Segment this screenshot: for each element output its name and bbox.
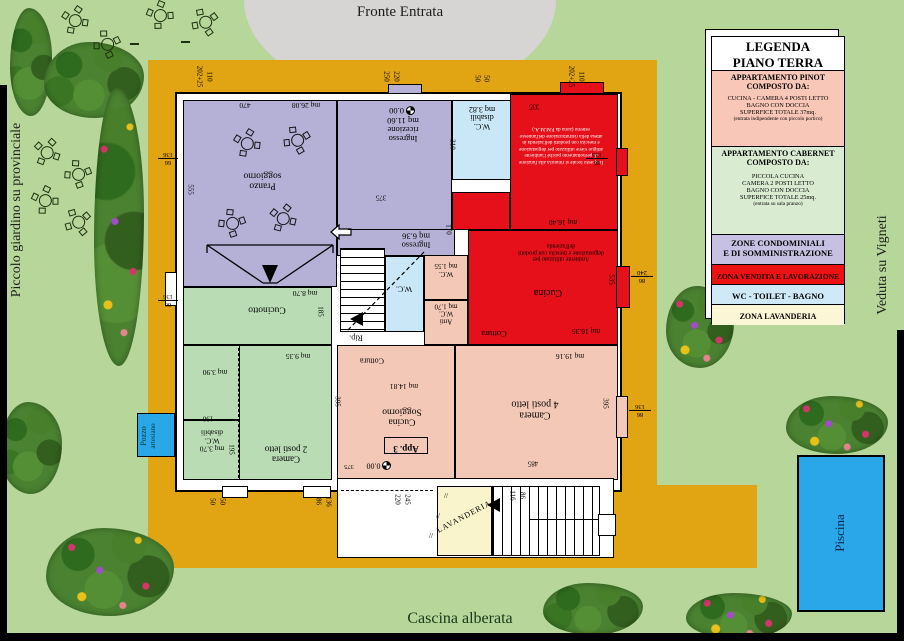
hatch-mark: //	[436, 512, 440, 520]
label-cottura-vendita: Cottura	[472, 329, 516, 338]
label-vendita-mq: mq 16.40	[540, 218, 586, 226]
label-wc-disabili-nord: W.C. disabili mq 3.82	[457, 104, 507, 130]
dim-375-ricezione: 375	[368, 193, 394, 201]
dim-bottom-4b: 86	[519, 481, 526, 511]
legend-title: LEGENDA PIANO TERRA	[712, 37, 844, 71]
ricezione-opening	[348, 229, 446, 230]
dim-170: 170	[445, 215, 452, 245]
dim-top-3b: 50	[483, 68, 490, 90]
label-pranzo: Pranzo soggiorno	[225, 170, 300, 191]
dim-left-1: 66136	[157, 150, 179, 166]
legend-entry-pinot: APPARTAMENTO PINOT COMPOSTO DA: CUCINA -…	[712, 71, 844, 147]
dim-555: 555	[187, 175, 194, 205]
dim-bottom-2a: 86	[315, 487, 322, 517]
dim-140: 140	[460, 170, 467, 200]
stairs-mid-rail	[530, 519, 598, 520]
dim-395-est: 395	[602, 389, 609, 419]
dim-right-1: 86136	[585, 150, 609, 166]
datum-icon	[383, 461, 392, 470]
bush	[0, 402, 62, 494]
dim-190: 190	[194, 414, 222, 422]
label-wc-155: W.C. mq 1.55	[427, 262, 465, 277]
dim-bottom-2b: 136	[325, 487, 332, 517]
label-camera2-mq: mq 9.35	[276, 352, 320, 360]
label-piccolo-giardino: Piccolo giardino su provinciale	[9, 95, 31, 325]
hatch-mark: //	[444, 492, 448, 500]
label-piscina: Piscina	[832, 493, 850, 573]
table-icon	[188, 5, 223, 40]
table-icon	[58, 3, 91, 36]
courtyard-extension	[657, 485, 757, 568]
camera2-dashed-wall	[238, 348, 239, 478]
stairs-landing	[598, 514, 616, 536]
table-icon	[63, 159, 93, 189]
table-icon	[60, 204, 96, 240]
label-mq390: mq 3.90	[192, 368, 238, 376]
dim-right-2: 86240	[630, 268, 654, 284]
stairs-main-arrow	[350, 312, 363, 326]
room-mq390	[183, 345, 240, 420]
frame-right	[897, 330, 904, 633]
dim-395-ovest: 395	[334, 387, 341, 417]
frame-left	[0, 85, 7, 633]
dim-top-2b: 220	[393, 62, 400, 92]
dim-top-4a: 202+25	[568, 59, 575, 95]
dash-mark	[130, 43, 139, 45]
label-rip: Rip.	[342, 333, 370, 342]
label-ricezione: Ingresso ricezione mq 11.60 0.00	[372, 106, 434, 143]
dim-top-3a: 50	[474, 68, 481, 90]
legend-entry-lavanderia: ZONA LAVANDERIA	[712, 305, 844, 325]
label-anti-wc: Anti W.C. mq 1.70	[426, 302, 466, 325]
dim-375-app3: 375	[338, 463, 360, 470]
dim-535: 535	[608, 265, 615, 295]
label-cucina: Cucina	[520, 286, 576, 297]
table-icon	[29, 134, 65, 170]
legend-entry-wc: WC - TOILET - BAGNO	[712, 285, 844, 305]
table-icon	[30, 185, 61, 216]
door-camera4-est	[616, 396, 628, 438]
dim-right-3: 86136	[628, 402, 652, 418]
label-pozzo: Pozzo artesiano	[139, 414, 173, 458]
dim-195: 195	[228, 437, 235, 463]
legend-entry-cabernet: APPARTAMENTO CABERNET COMPOSTO DA: PICCO…	[712, 147, 844, 235]
dim-185: 185	[317, 297, 324, 327]
stage-shape	[203, 241, 337, 287]
label-camera2: Camera 2 posti letto	[248, 444, 324, 463]
label-wc-scala: W.C.	[391, 284, 417, 293]
dim-bottom-1a: 50	[209, 487, 216, 517]
hatch-mark: //	[429, 532, 433, 540]
bush	[786, 396, 888, 454]
dim-470: 470	[230, 101, 260, 109]
label-cucina-mq: mq 16.35	[563, 327, 609, 335]
label-ingresso: Ingresso mq 6.36	[390, 231, 442, 249]
legend: LEGENDA PIANO TERRA APPARTAMENTO PINOT C…	[711, 36, 845, 324]
dim-bottom-3a: 220	[394, 485, 401, 515]
label-app3-mq: mq 14.81	[380, 382, 428, 390]
label-veduta-vigneti: Veduta su Vigneti	[875, 190, 893, 340]
corridor-opening	[341, 490, 433, 491]
bush	[46, 528, 174, 616]
dim-top-1a: 202+25	[196, 59, 203, 95]
label-cucinotto: Cucinotto	[238, 304, 296, 314]
dim-310: 310	[449, 130, 456, 160]
label-fronte-entrata: Fronte Entrata	[330, 4, 470, 21]
datum-icon	[406, 106, 415, 115]
label-camera4-mq: mq 19.16	[546, 352, 594, 360]
flower-hedge	[94, 88, 144, 366]
app3-tag-box: App. 3	[384, 437, 428, 454]
dim-bottom-4a: 116	[509, 481, 516, 511]
label-camera4: Camera 4 posti letto	[490, 398, 580, 420]
dim-top-4b: 110	[578, 59, 585, 95]
label-app3-datum: 0.00	[352, 461, 408, 470]
entrance-arrow-icon	[330, 224, 352, 240]
label-app3-name: Cucina Soggiorno	[362, 406, 442, 427]
dash-mark	[181, 41, 190, 43]
dim-335: 335	[520, 102, 548, 110]
label-cucina-text: Ambiente utilizzato per degustazione e m…	[518, 242, 604, 261]
floor-plan-scene: Pranzo soggiorno mq 26.08 470 555 Ingres…	[0, 0, 904, 641]
label-cottura-app3: Cottura	[350, 356, 394, 365]
dim-bottom-3b: 245	[404, 485, 411, 515]
table-icon	[145, 0, 174, 29]
label-pranzo-mq: mq 26.08	[283, 101, 329, 109]
door-cucina-est	[616, 266, 630, 308]
label-cascina-alberata: Cascina alberata	[392, 610, 528, 628]
bush	[543, 583, 643, 635]
legend-entry-condominiali: ZONE CONDOMINIALI E DI SOMMINISTRAZIONE	[712, 235, 844, 265]
dim-left-2: 66136	[157, 292, 179, 308]
frame-bottom	[0, 633, 904, 641]
dim-485: 485	[518, 459, 548, 467]
dim-bottom-1b: 50	[219, 487, 226, 517]
dim-top-2a: 250	[383, 62, 390, 92]
legend-entry-vendita: ZONA VENDITA E LAVORAZIONE	[712, 265, 844, 285]
door-vendita-est	[616, 148, 628, 176]
table-icon	[217, 208, 246, 237]
door-sud-1	[222, 486, 248, 498]
dim-top-1b: 110	[206, 59, 213, 95]
